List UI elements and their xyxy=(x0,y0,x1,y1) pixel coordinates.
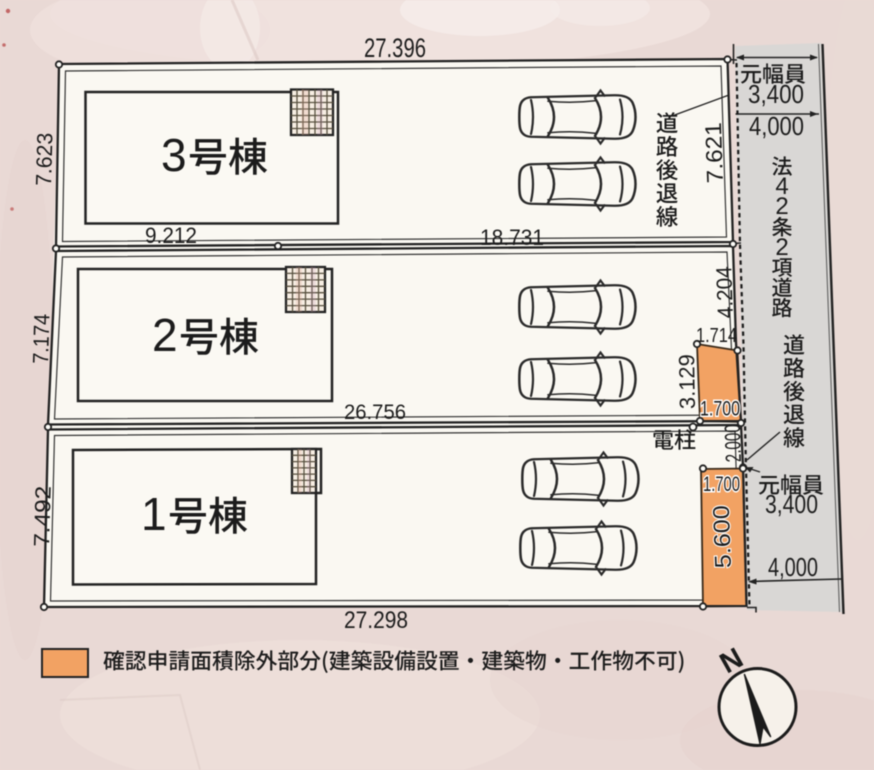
svg-text:7.623: 7.623 xyxy=(31,132,57,186)
svg-text:1: 1 xyxy=(141,488,167,540)
svg-text:1.700: 1.700 xyxy=(700,398,740,421)
svg-text:2: 2 xyxy=(775,193,788,220)
svg-text:27.298: 27.298 xyxy=(344,607,408,634)
svg-text:26.756: 26.756 xyxy=(344,400,406,424)
svg-text:4,000: 4,000 xyxy=(768,552,818,582)
svg-text:7.621: 7.621 xyxy=(700,122,728,184)
svg-text:5.600: 5.600 xyxy=(708,505,736,569)
svg-text:18.731: 18.731 xyxy=(480,225,544,250)
svg-text:27.396: 27.396 xyxy=(364,33,426,63)
svg-text:4,000: 4,000 xyxy=(749,111,804,141)
svg-text:9.212: 9.212 xyxy=(145,223,197,248)
svg-text:3,400: 3,400 xyxy=(748,79,804,109)
svg-text:1.700: 1.700 xyxy=(703,473,740,496)
svg-text:2: 2 xyxy=(152,309,178,361)
svg-text:3.129: 3.129 xyxy=(674,354,700,409)
svg-text:3: 3 xyxy=(161,129,187,181)
svg-text:2: 2 xyxy=(775,234,788,261)
svg-text:7.174: 7.174 xyxy=(28,313,54,364)
svg-text:7.492: 7.492 xyxy=(29,485,56,547)
svg-text:1.714: 1.714 xyxy=(696,325,737,347)
svg-text:4.204: 4.204 xyxy=(711,266,738,319)
svg-text:2.000: 2.000 xyxy=(720,424,746,463)
